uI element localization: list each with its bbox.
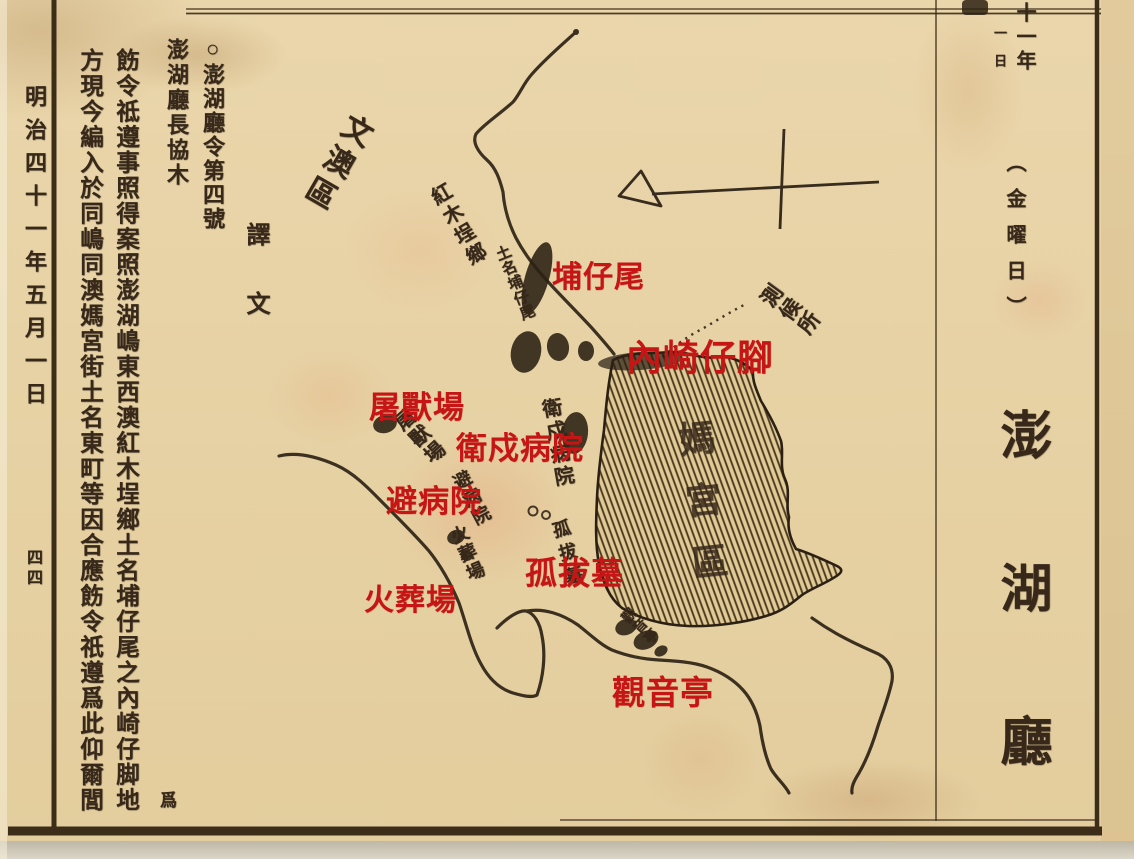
annotation-isolation-hospital: 避病院 bbox=[386, 476, 482, 521]
annotation-courbet-tomb: 孤拔墓 bbox=[525, 548, 624, 594]
translation-label: 譯文 bbox=[238, 222, 273, 360]
scan-left-edge bbox=[0, 0, 7, 859]
page-number: 四四 bbox=[20, 549, 44, 589]
stray-character: 爲 bbox=[160, 786, 177, 811]
annotation-crematory: 火葬場 bbox=[364, 575, 457, 619]
annotation-puzaiwei: 埔仔尾 bbox=[552, 252, 645, 296]
decree-body-column-1: 飭令祗遵事照得案照澎湖嶋東西澳紅木埕鄉土名埔仔尾之內崎仔脚地 bbox=[108, 48, 142, 813]
issue-date-column: 明治四十一年五月一日 bbox=[18, 85, 50, 415]
decree-signature: 澎湖廳長協木 bbox=[160, 38, 192, 188]
scanned-gazette-page: 明治四十一年五月一日 四四 ○澎湖廳令第四號 澎湖廳長協木 譯文 飭令祗遵事照得… bbox=[0, 0, 1134, 859]
coastline-southeast bbox=[812, 618, 892, 793]
annotation-slaughterhouse: 屠獸場 bbox=[369, 382, 465, 427]
decree-title: ○澎湖廳令第四號 bbox=[196, 36, 228, 231]
masthead-day: 一日 bbox=[990, 26, 1009, 82]
annotation-guanyin-pavilion: 觀音亭 bbox=[612, 666, 714, 714]
courbet-tomb-circles bbox=[529, 507, 551, 520]
scan-bottom-edge bbox=[0, 841, 1134, 859]
compass-north-arrow bbox=[619, 129, 879, 229]
masthead-weekday: （金曜日） bbox=[1000, 152, 1029, 332]
masthead-year: 十一年 bbox=[1010, 2, 1039, 74]
decree-body-column-2: 方現今編入於同嶋同澳媽宮街土名東町等因合應飭令祇遵爲此仰爾閭 bbox=[72, 48, 106, 813]
section-title-penghu: 澎湖廳 bbox=[983, 408, 1058, 859]
torn-corner-smudge bbox=[962, 0, 988, 15]
coastline-north bbox=[475, 31, 614, 354]
annotation-neiqizijiao: 內崎仔腳 bbox=[626, 329, 774, 381]
annotation-garrison-hospital: 衛戍病院 bbox=[456, 423, 584, 468]
